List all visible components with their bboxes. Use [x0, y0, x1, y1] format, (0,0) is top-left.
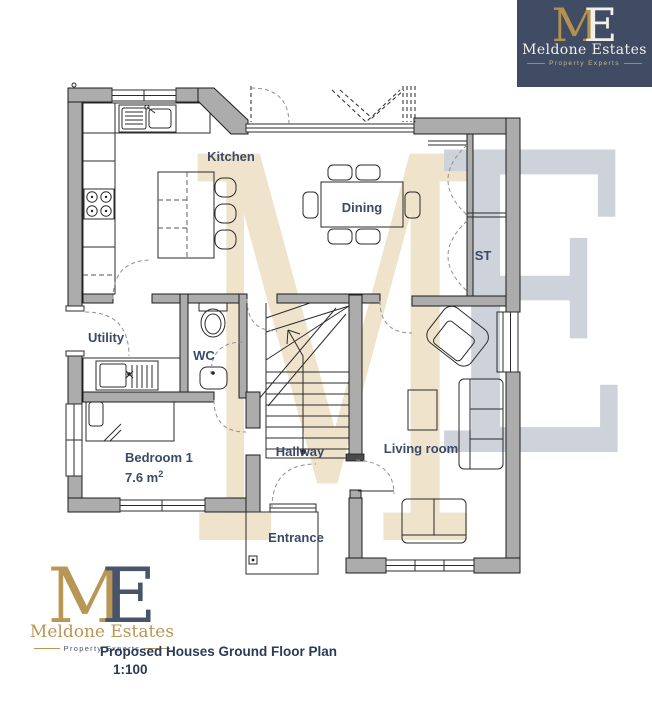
front-door-sill	[270, 504, 316, 512]
room-label-entrance: Entrance	[268, 530, 324, 545]
room-label-living: Living room	[384, 441, 458, 456]
tagline-dash	[34, 648, 60, 649]
room-label-kitchen: Kitchen	[207, 149, 255, 164]
brand-name: Meldone Estates	[22, 622, 182, 642]
floor-plan-page: M E	[0, 0, 652, 720]
room-label-dining: Dining	[342, 200, 382, 215]
room-label-hallway: Hallway	[276, 444, 325, 459]
brand-name: Meldone Estates	[522, 42, 647, 58]
kitchen-sink-icon	[119, 105, 176, 132]
brand-logo-top: ME Meldone Estates Property Experts	[517, 0, 652, 87]
bedroom-furniture	[86, 399, 174, 441]
brand-logo-bottom: ME Meldone Estates Property Experts	[22, 558, 182, 653]
watermark-monogram: M E	[183, 48, 641, 665]
room-label-utility: Utility	[88, 330, 125, 345]
living-side-window	[503, 312, 518, 372]
watermark-e: E	[428, 67, 641, 550]
tagline-dash	[527, 63, 545, 64]
brand-tagline: Property Experts	[549, 60, 620, 67]
bedroom-side-window	[66, 404, 82, 476]
bed-icon	[86, 399, 174, 441]
bifold-door-sill	[246, 124, 414, 132]
plan-scale: 1:100	[113, 661, 337, 679]
room-label-storage: ST	[475, 248, 492, 263]
room-label-bedroom1-area: 7.6 m2	[125, 469, 163, 485]
tagline-dash	[624, 63, 642, 64]
room-label-wc: WC	[193, 348, 215, 363]
plan-title: Proposed Houses Ground Floor Plan	[100, 643, 337, 661]
room-label-bedroom1: Bedroom 1	[125, 450, 193, 465]
living-front-window	[386, 560, 474, 571]
utility-sink-icon	[96, 361, 158, 390]
kitchen-window	[112, 90, 176, 101]
title-block: Proposed Houses Ground Floor Plan 1:100	[100, 643, 337, 678]
utility-fixtures	[83, 358, 180, 392]
bedroom-front-window	[120, 500, 205, 511]
hob-icon	[84, 189, 114, 219]
brand-tagline-row: Property Experts	[527, 60, 642, 67]
